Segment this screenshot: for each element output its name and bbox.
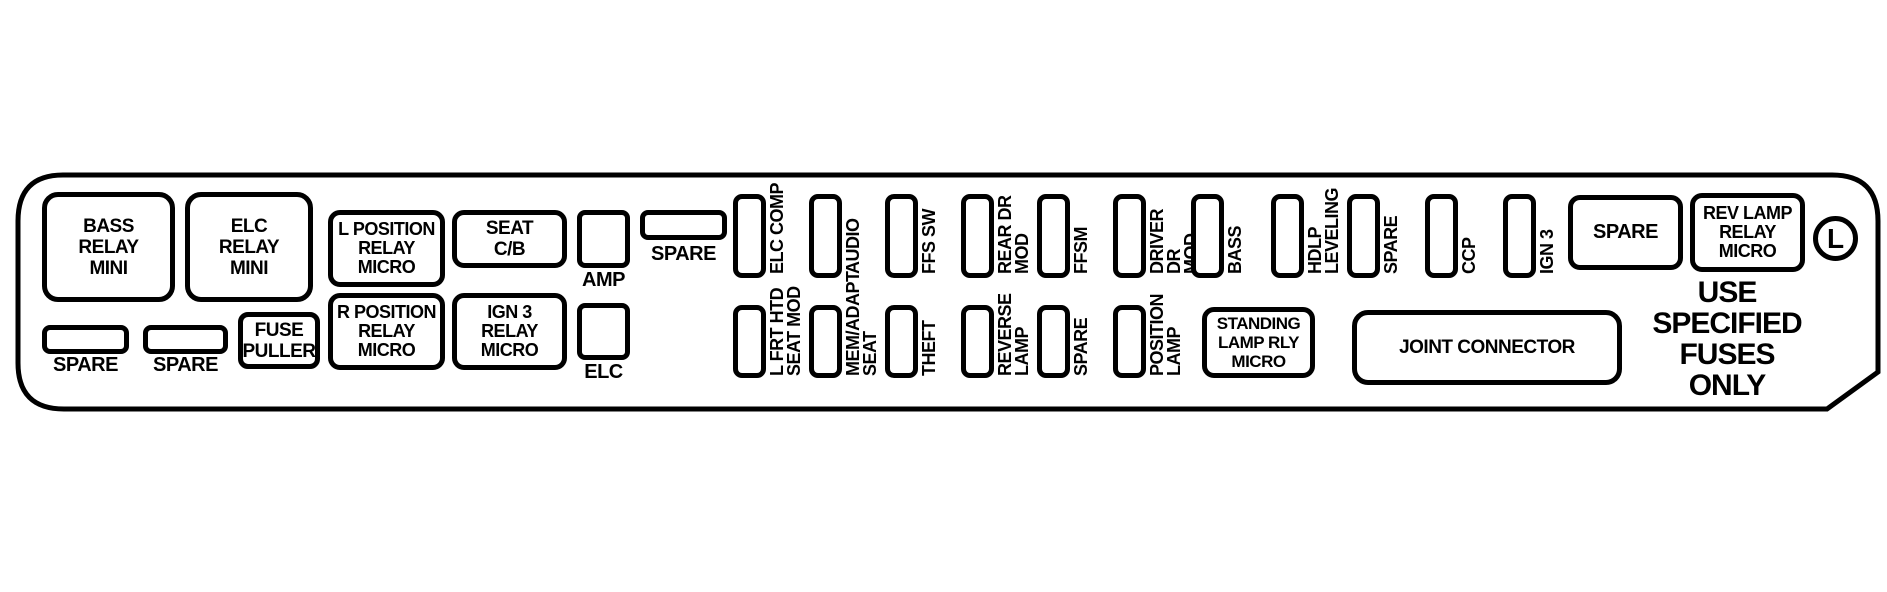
- fuse-label-mem-adapt-seat: MEM/ADAPT SEAT: [845, 276, 879, 376]
- ign3-relay-micro: IGN 3 RELAY MICRO: [452, 293, 567, 370]
- use-specified-fuses-note: USE SPECIFIED FUSES ONLY: [1637, 277, 1817, 401]
- fuse-puller: FUSE PULLER: [238, 312, 320, 369]
- fuse-box-diagram: BASS RELAY MINI ELC RELAY MINI SPARE SPA…: [0, 0, 1887, 592]
- spare-slot-2-label: SPARE: [143, 354, 228, 377]
- fuse-slot-spare-bottom: [1037, 305, 1070, 378]
- fuse-label-ccp: CCP: [1461, 182, 1478, 274]
- fuse-slot-ffsm: [1037, 194, 1070, 278]
- spare-mid-label: SPARE: [640, 243, 727, 266]
- fuse-slot-driver-dr-mod: [1113, 194, 1146, 278]
- amp-label: AMP: [565, 269, 642, 292]
- fuse-slot-ccp: [1425, 194, 1458, 278]
- fuse-slot-theft: [885, 305, 918, 378]
- fuse-label-audio: AUDIO: [845, 182, 862, 274]
- fuse-label-reverse-lamp: REVERSE LAMP: [997, 284, 1031, 376]
- fuse-label-hdlp-leveling: HDLP LEVELING: [1307, 182, 1341, 274]
- fuse-slot-position-lamp: [1113, 305, 1146, 378]
- rev-lamp-relay-micro: REV LAMP RELAY MICRO: [1690, 193, 1805, 272]
- fuse-label-ign3: IGN 3: [1539, 182, 1556, 274]
- fuse-label-bass: BASS: [1227, 182, 1244, 274]
- spare-slot-1-label: SPARE: [42, 354, 129, 377]
- fuse-slot-l-frt-htd-seat-mod: [733, 305, 766, 378]
- spare-box-right: SPARE: [1568, 195, 1683, 270]
- bass-relay-mini: BASS RELAY MINI: [42, 192, 175, 302]
- elc-slot: [577, 303, 630, 360]
- elc-label: ELC: [565, 361, 642, 384]
- standing-lamp-relay-micro: STANDING LAMP RLY MICRO: [1202, 307, 1315, 378]
- seat-cb: SEAT C/B: [452, 210, 567, 268]
- fuse-label-l-frt-htd-seat-mod: L FRT HTD SEAT MOD: [769, 280, 803, 376]
- fuse-slot-hdlp-leveling: [1271, 194, 1304, 278]
- fuse-label-ffs-sw: FFS SW: [921, 182, 938, 274]
- l-position-relay-micro: L POSITION RELAY MICRO: [328, 210, 445, 287]
- fuse-slot-elc-comp: [733, 194, 766, 278]
- fuse-slot-bass: [1191, 194, 1224, 278]
- fuse-slot-spare-top: [1347, 194, 1380, 278]
- fuse-label-position-lamp: POSITION LAMP: [1149, 284, 1183, 376]
- fuse-slot-rear-dr-mod: [961, 194, 994, 278]
- spare-mid-slot: [640, 210, 727, 240]
- r-position-relay-micro: R POSITION RELAY MICRO: [328, 293, 445, 370]
- fuse-label-ffsm: FFSM: [1073, 182, 1090, 274]
- spare-slot-2: [143, 325, 228, 354]
- fuse-slot-ffs-sw: [885, 194, 918, 278]
- fuse-label-elc-comp: ELC COMP: [769, 182, 786, 274]
- joint-connector: JOINT CONNECTOR: [1352, 310, 1622, 385]
- fuse-slot-reverse-lamp: [961, 305, 994, 378]
- fuse-slot-audio: [809, 194, 842, 278]
- fuse-label-rear-dr-mod: REAR DR MOD: [997, 182, 1031, 274]
- fuse-label-spare-bottom: SPARE: [1073, 284, 1090, 376]
- elc-relay-mini: ELC RELAY MINI: [185, 192, 313, 302]
- fuse-label-spare-top: SPARE: [1383, 182, 1400, 274]
- fuse-label-theft: THEFT: [921, 284, 938, 376]
- fuse-slot-ign3: [1503, 194, 1536, 278]
- fuse-slot-mem-adapt-seat: [809, 305, 842, 378]
- spare-slot-1: [42, 325, 129, 354]
- circled-l-badge: L: [1813, 216, 1858, 261]
- amp-slot: [577, 210, 630, 268]
